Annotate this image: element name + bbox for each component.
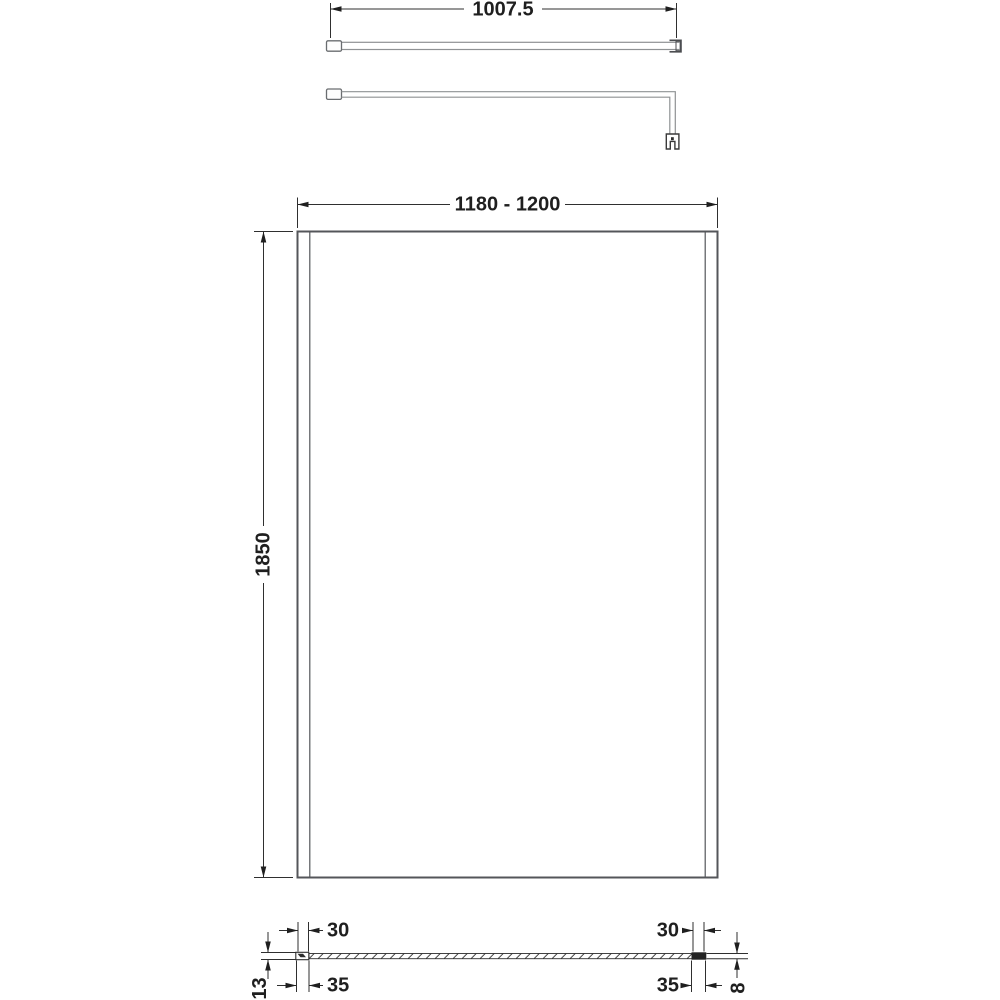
dim-label-panel-height: 1850 <box>253 532 275 577</box>
arrowhead-left <box>704 928 715 934</box>
arrowhead-up <box>734 959 740 970</box>
arrowhead-right <box>286 983 297 989</box>
support-arm-plan-view: 1007.5 <box>327 0 682 52</box>
dimension-left-glass-inset: 30 <box>279 920 349 952</box>
dim-label-right-glass-inset: 30 <box>657 920 679 942</box>
dimension-panel-height: 1850 <box>252 232 293 878</box>
support-bar-tube <box>329 42 680 49</box>
panel-section-view: 30 35 13 <box>249 920 750 1000</box>
support-bar-outer-line <box>342 92 676 134</box>
dim-label-glass-thickness: 8 <box>728 982 750 993</box>
arrowhead-right <box>707 202 718 208</box>
dim-label-left-glass-inset: 30 <box>327 920 349 942</box>
arrowhead-left <box>309 983 320 989</box>
dimension-arm-length: 1007.5 <box>331 0 677 38</box>
dim-label-left-profile-width: 35 <box>327 975 349 997</box>
dim-label-arm-length: 1007.5 <box>472 0 533 21</box>
arrowhead-left <box>706 983 717 989</box>
wall-mount-fitting <box>327 89 342 99</box>
dimension-right-glass-inset: 30 <box>657 920 721 952</box>
drawing-svg: 1007.5 1180 - 1200 <box>0 0 1000 1000</box>
dim-label-right-profile-width: 35 <box>657 975 679 997</box>
arrowhead-left <box>298 202 309 208</box>
arrowhead-up <box>265 960 271 971</box>
support-arm-side-view <box>327 89 679 149</box>
dim-label-left-profile-depth: 13 <box>249 977 271 999</box>
arrowhead-right <box>666 6 677 12</box>
glass-section-hatch <box>309 954 692 959</box>
dimension-panel-width: 1180 - 1200 <box>298 194 718 229</box>
dimension-left-profile-width: 35 <box>277 961 349 997</box>
right-profile-section <box>692 953 706 959</box>
arrowhead-down <box>265 942 271 953</box>
dimension-right-profile-width: 35 <box>657 961 722 997</box>
glass-panel <box>298 232 718 878</box>
arrowhead-left <box>331 6 342 12</box>
arrowhead-right <box>681 983 692 989</box>
wall-mount-fitting <box>327 41 342 51</box>
arrowhead-right <box>682 928 693 934</box>
panel-front-view: 1180 - 1200 1850 <box>252 194 718 878</box>
dimension-left-profile-depth: 13 <box>249 932 296 1000</box>
dim-label-panel-width: 1180 - 1200 <box>455 194 561 216</box>
arrowhead-down <box>734 943 740 954</box>
arrowhead-down <box>261 867 267 878</box>
technical-drawing: 1007.5 1180 - 1200 <box>0 0 1000 1000</box>
clamp-screw <box>671 137 674 140</box>
support-bar-inner-line <box>342 97 670 134</box>
arrowhead-up <box>261 232 267 243</box>
arrowhead-right <box>287 928 298 934</box>
glass-clamp <box>666 134 679 149</box>
arrowhead-left <box>309 928 320 934</box>
